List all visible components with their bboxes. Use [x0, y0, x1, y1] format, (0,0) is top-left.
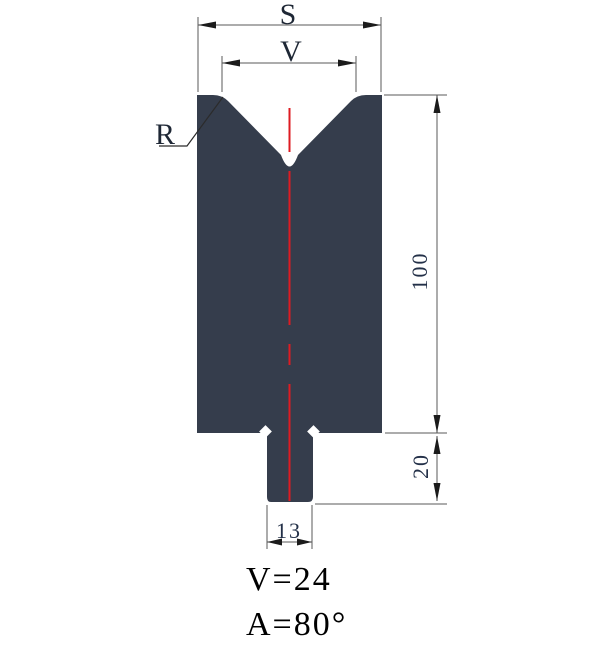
technical-drawing-canvas: S V R 100 20 13 [0, 0, 600, 650]
dimension-label-20: 20 [408, 453, 433, 479]
arrowhead-top [434, 436, 441, 454]
arrowhead-top [434, 95, 441, 113]
arrowhead-right [363, 22, 381, 29]
caption-block: V=24 A=80° [246, 561, 347, 643]
dimension-label-13: 13 [276, 518, 302, 543]
arrowhead-left [198, 22, 216, 29]
dimension-label-100: 100 [407, 252, 432, 291]
dimension-13: 13 [267, 505, 312, 549]
v-die-diagram: S V R 100 20 13 [0, 0, 600, 650]
arrowhead-right [338, 60, 356, 67]
caption-angle-value: A=80° [246, 606, 347, 643]
arrowhead-bottom [434, 483, 441, 501]
dimension-v: V [222, 35, 356, 92]
dimension-100: 100 [384, 95, 447, 433]
caption-v-value: V=24 [246, 561, 332, 598]
dimension-label-s: S [280, 0, 297, 31]
dimension-label-v: V [280, 35, 302, 68]
arrowhead-bottom [434, 415, 441, 433]
arrowhead-left [222, 60, 240, 67]
radius-label: R [155, 118, 175, 151]
dimension-20: 20 [315, 436, 447, 504]
